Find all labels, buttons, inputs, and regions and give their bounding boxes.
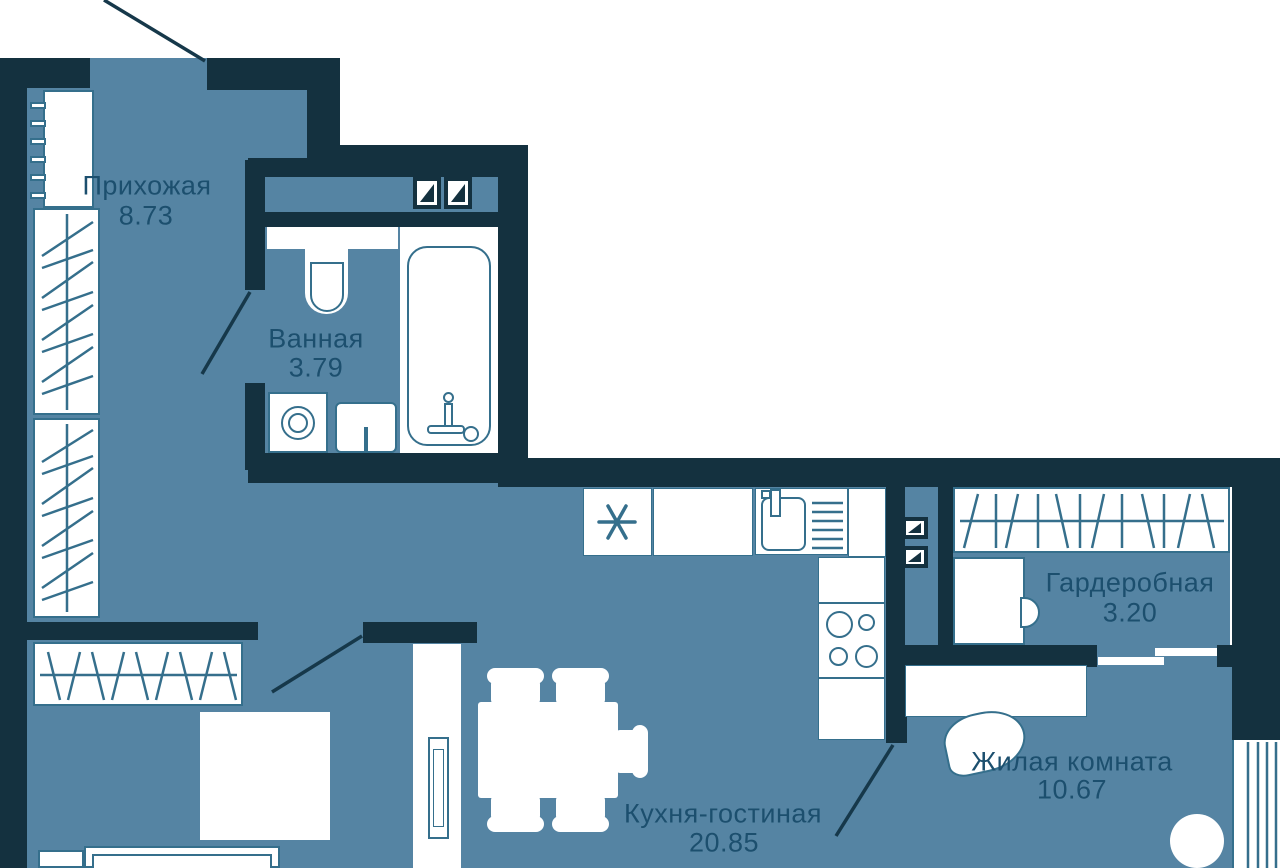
door-swing-entrance xyxy=(104,0,205,61)
wall-top-a xyxy=(0,58,90,88)
room-label-wardrobe: Гардеробная xyxy=(1046,568,1215,599)
bathtub-faucet-head xyxy=(463,426,479,442)
radiator-fin xyxy=(30,174,46,181)
wall-bathroom-bottom xyxy=(248,453,528,483)
hob-burner xyxy=(826,611,853,638)
chair xyxy=(487,816,544,832)
room-area-bathroom: 3.79 xyxy=(289,353,344,384)
kitchen-sink-tap xyxy=(770,489,781,517)
hob xyxy=(818,603,885,678)
counter-cell xyxy=(653,488,753,556)
wall-kitchen-hall-piece xyxy=(363,622,477,643)
fridge xyxy=(583,488,652,556)
nightstand xyxy=(38,850,84,868)
wall-bathroom-left-upper xyxy=(245,160,265,290)
wardrobe-rail-closet xyxy=(953,487,1230,553)
bathroom-sink-tap xyxy=(364,427,368,453)
closet-hangers-2 xyxy=(33,418,100,618)
radiator-fin xyxy=(30,192,46,199)
wall-top-connector xyxy=(307,88,340,160)
dining-table xyxy=(478,702,618,798)
wall-bathroom-shaft-band xyxy=(265,212,498,227)
bathtub-faucet-pipe xyxy=(427,425,465,434)
radiator-fin xyxy=(30,120,46,127)
chair xyxy=(556,680,605,704)
desk xyxy=(905,665,1087,717)
floor-living-door-gap xyxy=(886,743,907,868)
room-label-bathroom: Ванная xyxy=(268,324,363,355)
radiator-fin xyxy=(30,156,46,163)
hob-burner xyxy=(858,614,875,631)
wardrobe-cabinet xyxy=(953,557,1025,645)
chair xyxy=(491,680,540,704)
floor-plan: Прихожая 8.73 Ванная 3.79 Гардеробная 3.… xyxy=(0,0,1280,868)
radiator-fin xyxy=(30,102,46,109)
radiator-right xyxy=(1232,740,1280,868)
bathtub-faucet-knob xyxy=(443,392,454,403)
vent-shaft-kitchen xyxy=(905,487,938,645)
room-label-hallway: Прихожая xyxy=(82,171,211,202)
table-bottom-left-inner xyxy=(92,854,272,868)
room-label-living-room: Жилая комната xyxy=(971,747,1173,778)
hob-burner xyxy=(829,647,848,666)
closet-hangers-3 xyxy=(33,642,243,706)
sliding-door-leaf xyxy=(1155,648,1217,656)
floor-entrance-gap xyxy=(88,58,207,90)
wall-outer-right xyxy=(1232,458,1280,740)
wall-top-b xyxy=(207,58,340,90)
toilet-bowl xyxy=(310,262,344,312)
room-area-living-room: 10.67 xyxy=(1037,775,1107,806)
wall-wardrobe-bottom-right xyxy=(1217,645,1232,667)
wall-wardrobe-bottom xyxy=(886,645,1097,667)
round-table xyxy=(1170,814,1224,868)
counter-corner xyxy=(848,488,886,557)
wall-kitchen-vertical xyxy=(886,487,907,743)
wall-bathroom-right xyxy=(498,145,528,487)
bathtub-faucet-stem xyxy=(444,403,453,427)
wall-outer-left xyxy=(0,58,27,868)
radiator-fin xyxy=(30,138,46,145)
wall-shaft-right xyxy=(938,487,953,647)
room-area-wardrobe: 3.20 xyxy=(1103,598,1158,629)
kitchen-sink-basin xyxy=(761,497,806,551)
washing-machine-drum-inner xyxy=(288,413,308,433)
room-area-hallway: 8.73 xyxy=(119,201,174,232)
closet-hangers-1 xyxy=(33,208,100,415)
wall-hallway-bottom xyxy=(0,622,258,640)
bed xyxy=(200,712,330,840)
chair xyxy=(632,725,648,778)
floor-bathroom-door-gap xyxy=(245,290,265,383)
chair xyxy=(552,816,609,832)
vent-shaft-bathroom xyxy=(265,177,498,212)
tv-screen xyxy=(433,749,444,827)
counter-cell xyxy=(818,557,885,603)
room-area-kitchen-living: 20.85 xyxy=(689,828,759,859)
wall-kitchen-top xyxy=(498,458,1280,487)
room-label-kitchen-living: Кухня-гостиная xyxy=(624,799,822,830)
hob-burner xyxy=(855,645,878,668)
sliding-door-leaf xyxy=(1098,657,1164,665)
bathroom-shelf xyxy=(267,227,398,249)
counter-cell xyxy=(818,678,885,740)
kitchen-sink-tap-base xyxy=(761,490,771,499)
